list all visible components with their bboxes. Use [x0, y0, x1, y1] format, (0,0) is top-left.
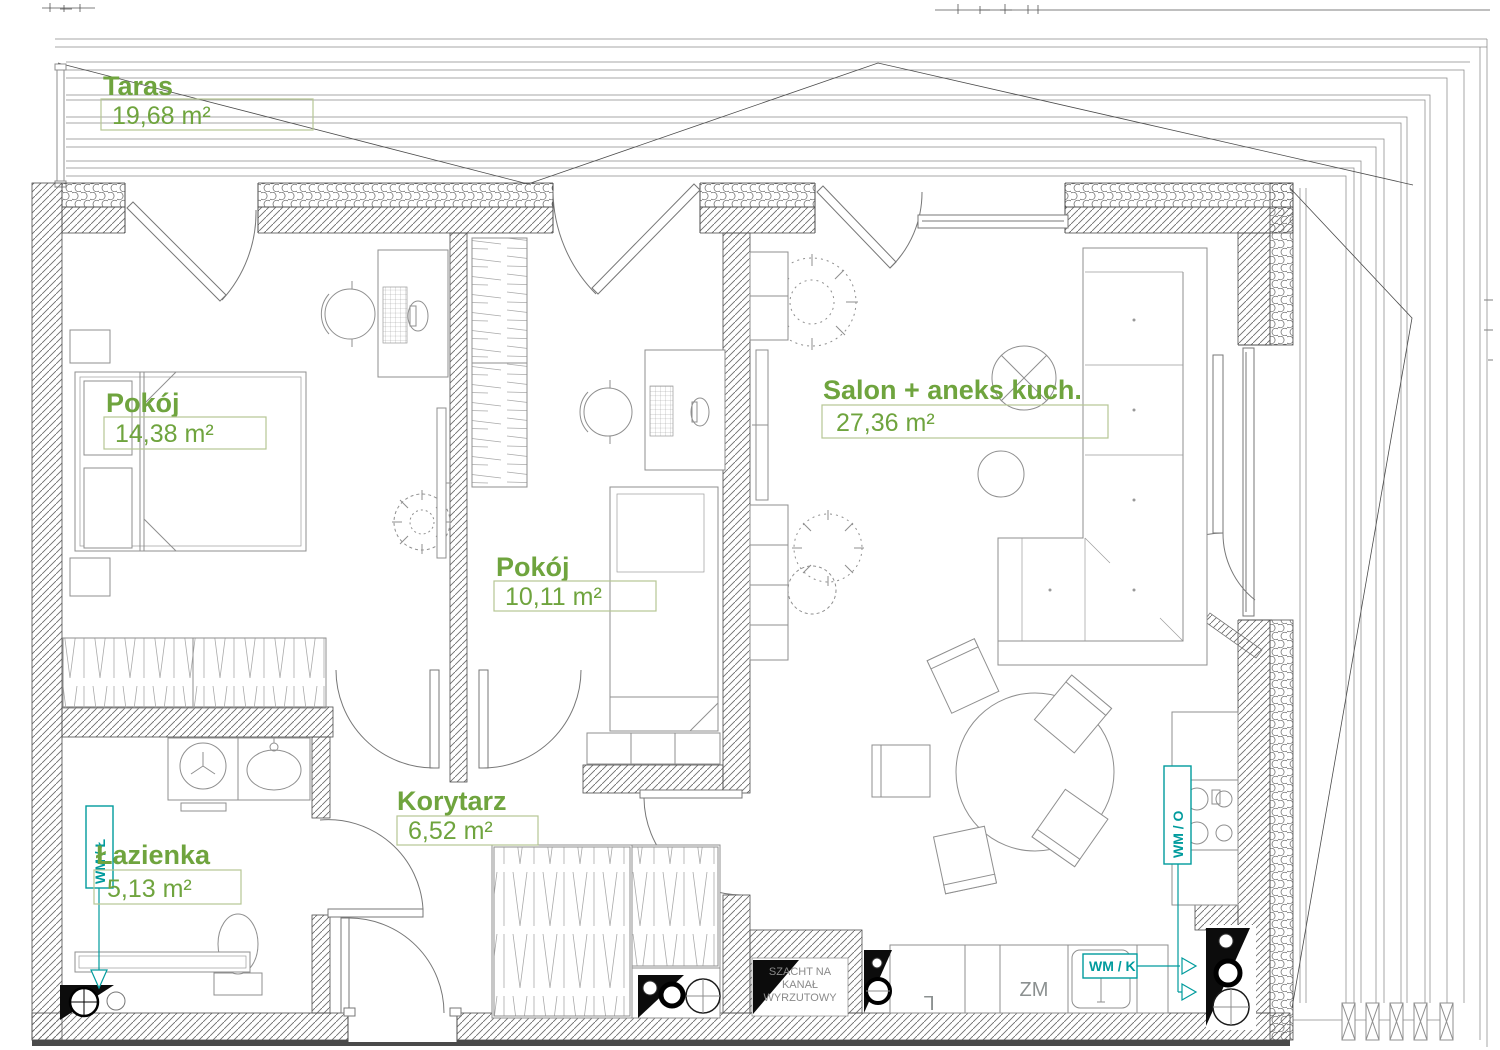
bedroom-wardrobe — [63, 638, 326, 708]
nightstand — [70, 330, 110, 363]
shaft-note-line2: KANAŁ — [782, 979, 818, 991]
bathroom-sink — [238, 738, 310, 800]
shaft-note-line1: SZACHT NA — [769, 966, 832, 978]
wall-bathroom-corridor-b — [312, 915, 330, 1013]
shaft-kitchen-right — [1206, 925, 1256, 1030]
keyboard — [650, 386, 673, 436]
room2-desk — [645, 350, 725, 470]
wall-bedroom-room2 — [450, 233, 467, 782]
floor-plan-page: L ZM — [0, 0, 1500, 1050]
bedroom-desk — [378, 250, 448, 377]
dishwasher-label: ZM — [1020, 979, 1049, 1001]
shaft-note-line3: WYRZUTOWY — [763, 992, 837, 1004]
wall-bottom-edge — [32, 1040, 1290, 1046]
room2-wardrobe — [472, 238, 527, 487]
room-name: Taras — [103, 71, 173, 101]
wall-bathroom-corridor-a — [312, 737, 330, 818]
keyboard — [383, 287, 407, 343]
floor-plan-drawing: L ZM — [0, 0, 1500, 1050]
insulation-right-bottom — [1270, 620, 1293, 1040]
wall-bedroom-bathroom — [62, 707, 333, 737]
terrace-railing — [55, 64, 66, 187]
room-area: 19,68 m² — [112, 102, 211, 130]
nightstand — [70, 558, 110, 596]
room-area: 5,13 m² — [107, 875, 192, 903]
pillow — [84, 468, 132, 548]
exhaust-shaft-note: SZACHT NA KANAŁ WYRZUTOWY — [752, 958, 848, 1016]
fridge-label: L — [923, 991, 934, 1013]
single-bed — [610, 487, 718, 731]
wall-salon-b — [723, 895, 750, 1013]
room-name: Pokój — [496, 552, 570, 582]
wm-k-label: WM / K — [1089, 958, 1136, 974]
washing-machine — [168, 738, 238, 811]
insulation-right-top — [1270, 183, 1293, 345]
room-name: Pokój — [106, 388, 180, 418]
room-area: 27,36 m² — [836, 409, 935, 437]
room-area: 10,11 m² — [505, 583, 602, 611]
room-name: Łazienka — [96, 840, 211, 870]
room-name: Korytarz — [397, 786, 507, 816]
bathroom-shelf — [75, 952, 250, 972]
wm-o-label: WM / O — [1170, 810, 1186, 858]
wall-salon-a — [723, 233, 750, 793]
wall-left — [32, 183, 62, 1040]
room-area: 14,38 m² — [115, 420, 214, 448]
room-area: 6,52 m² — [408, 817, 493, 845]
bed-foot-dresser — [587, 733, 720, 764]
wall-room2-corridor — [583, 765, 723, 793]
room-name: Salon + aneks kuch. — [823, 375, 1082, 405]
